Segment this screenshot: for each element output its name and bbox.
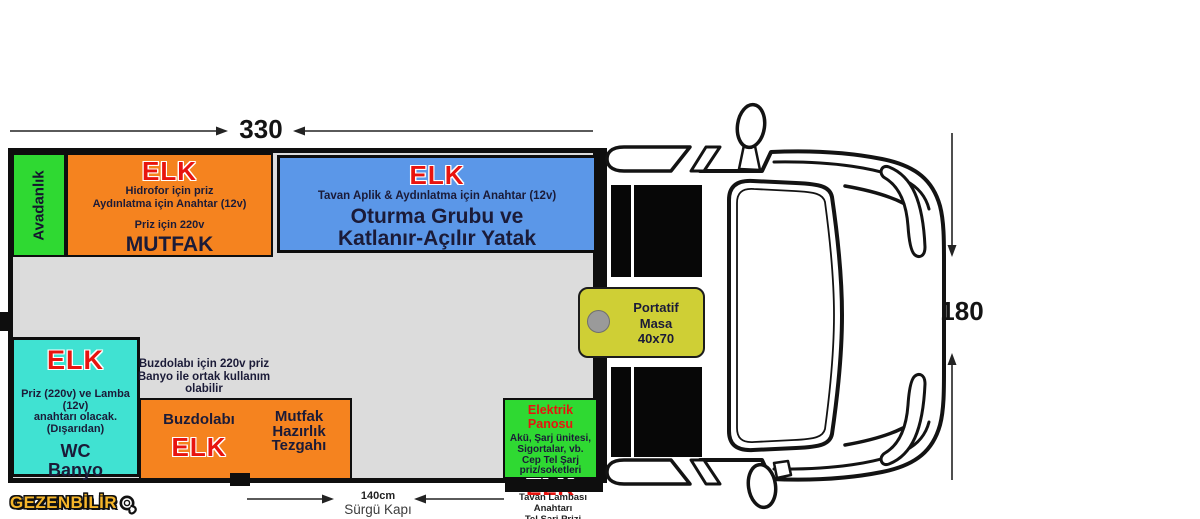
dim-width-label: 330 bbox=[233, 114, 289, 145]
buzdolabi-note-1: Buzdolabı için 220v priz bbox=[133, 358, 275, 371]
tezgah-right-line-3: Tezgahı bbox=[253, 439, 345, 454]
panel-note-2: Sigortalar, vb. bbox=[505, 445, 596, 456]
zone-portatif-masa: Portatif Masa 40x70 bbox=[578, 287, 705, 358]
driver-seat bbox=[634, 185, 702, 277]
gezenbilir-logo: GEZENBİLİR bbox=[10, 489, 140, 517]
wc-note-2: anahtarı olacak. bbox=[14, 412, 137, 424]
dimension-330-arrows bbox=[10, 127, 593, 136]
passenger-seat bbox=[634, 367, 702, 457]
roof-edge-top bbox=[774, 162, 929, 209]
buzdolabi-note-2: Banyo ile ortak kullanım bbox=[133, 371, 275, 384]
mutfak-note-2: Aydınlatma için Anahtar (12v) bbox=[68, 198, 271, 211]
roof-edge-bottom bbox=[774, 422, 929, 469]
wc-title-1: WC bbox=[14, 442, 137, 461]
mirror-head-top bbox=[735, 103, 768, 149]
door-width-label: 140cm bbox=[340, 490, 416, 502]
snail-icon bbox=[118, 495, 140, 517]
side-mirror-top bbox=[607, 147, 690, 171]
driver-seat-back bbox=[611, 185, 631, 277]
wc-note-1: Priz (220v) ve Lamba (12v) bbox=[14, 389, 137, 412]
wc-note-3: (Dışarıdan) bbox=[14, 424, 137, 436]
tezgah-left-title: Buzdolabı bbox=[151, 411, 247, 428]
zone-oturma-grubu: ELK Tavan Aplik & Aydınlatma için Anahta… bbox=[277, 155, 597, 253]
roof-lamp-note: Tavan Lambası Anahtarı Tel Şarj Prizi bbox=[500, 492, 606, 519]
buzdolabi-note-3: olabilir bbox=[133, 383, 275, 396]
camper-floorplan-page: Avadanlık ELK Hidrofor için priz Aydınla… bbox=[0, 0, 1200, 519]
oturma-title-1: Oturma Grubu ve bbox=[280, 205, 594, 228]
tezgah-right-title: Mutfak Hazırlık Tezgahı bbox=[253, 410, 345, 454]
gezenbilir-logo-text: GEZENBİLİR bbox=[10, 493, 117, 513]
hood-line-bottom bbox=[845, 428, 903, 445]
wc-elk-label: ELK bbox=[14, 345, 137, 375]
hood-line-top bbox=[845, 186, 903, 203]
zone-elektrik-panosu: Elektrik Panosu Akü, Şarj ünitesi, Sigor… bbox=[503, 398, 598, 479]
roof-lamp-note-1: Tavan Lambası Anahtarı bbox=[500, 492, 606, 514]
zone-wc-banyo: ELK Priz (220v) ve Lamba (12v) anahtarı … bbox=[11, 337, 140, 477]
door-stop-marker bbox=[230, 473, 250, 486]
fender-arch-top bbox=[881, 166, 925, 256]
windshield-inner-line bbox=[737, 189, 834, 442]
mirror-arm-bottom bbox=[691, 460, 720, 484]
dim-height-label: 180 bbox=[934, 296, 990, 327]
masa-line-2: Masa bbox=[610, 316, 702, 332]
oturma-note: Tavan Aplik & Aydınlatma için Anahtar (1… bbox=[280, 189, 594, 203]
tezgah-elk-label: ELK bbox=[151, 432, 247, 463]
masa-line-3: 40x70 bbox=[610, 331, 702, 347]
door-name-label: Sürgü Kapı bbox=[330, 502, 426, 517]
table-leg-mount bbox=[587, 310, 610, 333]
mirror-head-bottom bbox=[746, 463, 779, 509]
avadanlik-label: Avadanlık bbox=[31, 170, 48, 240]
mutfak-note-3: Priz için 220v bbox=[68, 219, 271, 232]
mirror-arm-top bbox=[691, 147, 720, 171]
mirror-stem-top bbox=[739, 145, 760, 170]
fender-arch-bottom bbox=[881, 375, 925, 465]
mutfak-elk-label: ELK bbox=[68, 157, 271, 185]
windshield bbox=[729, 181, 842, 450]
left-wall-tab bbox=[0, 312, 10, 331]
mutfak-title: MUTFAK bbox=[68, 233, 271, 256]
panel-bottom-bar bbox=[505, 479, 603, 492]
masa-line-1: Portatif bbox=[610, 300, 702, 316]
mutfak-note-1: Hidrofor için priz bbox=[68, 185, 271, 198]
side-mirror-bottom bbox=[607, 460, 690, 484]
cab-outline bbox=[700, 151, 944, 479]
wc-title-2: Banyo bbox=[14, 461, 137, 480]
zone-tezgah: Buzdolabı ELK Mutfak Hazırlık Tezgahı bbox=[139, 398, 352, 480]
oturma-elk-label: ELK bbox=[280, 161, 594, 189]
zone-avadanlik: Avadanlık bbox=[12, 153, 66, 257]
passenger-seat-back bbox=[611, 367, 631, 457]
zone-mutfak: ELK Hidrofor için priz Aydınlatma için A… bbox=[66, 153, 273, 257]
oturma-title-2: Katlanır-Açılır Yatak bbox=[280, 228, 594, 250]
mirror-stem-bottom bbox=[774, 461, 791, 478]
buzdolabi-note: Buzdolabı için 220v priz Banyo ile ortak… bbox=[133, 358, 275, 398]
roof-lamp-note-2: Tel Şarj Prizi bbox=[500, 514, 606, 519]
panel-title: Elektrik Panosu bbox=[505, 403, 596, 431]
